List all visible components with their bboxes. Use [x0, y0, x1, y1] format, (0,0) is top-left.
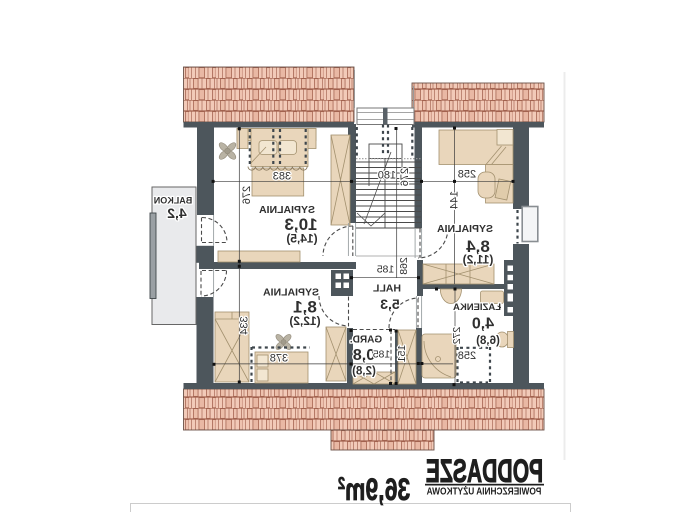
- svg-text:5,3: 5,3: [380, 296, 400, 312]
- svg-text:180: 180: [378, 170, 396, 182]
- svg-text:272: 272: [451, 327, 463, 345]
- svg-text:HALL: HALL: [372, 283, 401, 295]
- svg-text:0,8: 0,8: [353, 347, 375, 364]
- svg-text:SYPIALNIA: SYPIALNIA: [437, 223, 493, 235]
- svg-text:144: 144: [449, 191, 461, 209]
- svg-text:268: 268: [398, 257, 410, 275]
- svg-text:ŁAZIENKA: ŁAZIENKA: [453, 302, 501, 313]
- svg-text:(2,8): (2,8): [352, 366, 376, 378]
- svg-text:276: 276: [241, 186, 253, 204]
- svg-text:36,9m2: 36,9m2: [338, 471, 411, 506]
- svg-text:258: 258: [458, 350, 476, 362]
- svg-text:GARD.: GARD.: [350, 335, 382, 346]
- svg-text:BALKON: BALKON: [154, 196, 193, 206]
- svg-text:378: 378: [270, 353, 288, 365]
- svg-text:(6,8): (6,8): [476, 335, 500, 347]
- svg-text:(11,2): (11,2): [463, 253, 494, 267]
- svg-text:(14,5): (14,5): [286, 232, 317, 246]
- svg-text:334: 334: [239, 316, 251, 334]
- svg-text:POWIERZCHNIA UŻYTKOWA: POWIERZCHNIA UŻYTKOWA: [426, 486, 541, 497]
- svg-text:276: 276: [399, 168, 411, 186]
- svg-text:4,0: 4,0: [472, 316, 494, 333]
- svg-text:185: 185: [373, 349, 391, 361]
- svg-text:151: 151: [396, 345, 408, 363]
- svg-text:(12,2): (12,2): [289, 314, 320, 328]
- svg-text:PODDASZE: PODDASZE: [426, 452, 543, 489]
- svg-text:258: 258: [458, 169, 476, 181]
- svg-text:4,2: 4,2: [167, 205, 187, 221]
- svg-text:185: 185: [377, 264, 395, 276]
- svg-text:383: 383: [273, 171, 291, 183]
